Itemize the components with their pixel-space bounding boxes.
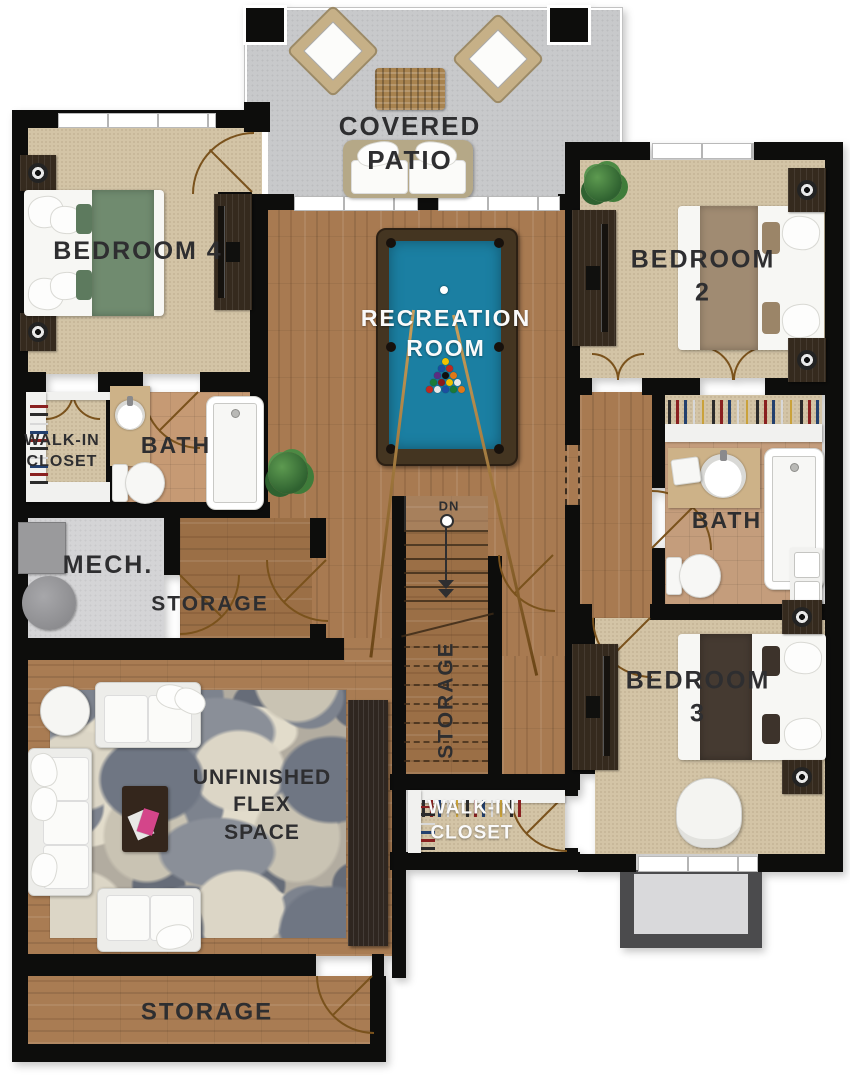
- wall: [565, 142, 650, 160]
- toilet: [666, 554, 720, 596]
- label-bath-left: BATH: [141, 431, 211, 461]
- patio-door-sill: [262, 128, 268, 194]
- tissue-box: [670, 456, 701, 486]
- stair-arrowhead: [438, 589, 454, 606]
- patio-post: [246, 8, 284, 42]
- stair-direction-line: [445, 526, 447, 588]
- wall: [390, 852, 580, 870]
- tv-screen: [602, 224, 608, 332]
- wall: [12, 1044, 384, 1062]
- nightstand: [782, 760, 822, 794]
- tv-screen: [604, 656, 610, 756]
- wall: [578, 854, 636, 872]
- wall: [565, 378, 592, 395]
- closet-shelf: [26, 482, 110, 502]
- wall: [758, 854, 843, 872]
- window-well-interior: [634, 874, 748, 934]
- stair-break-line: [401, 613, 494, 638]
- tub-drain: [790, 463, 799, 472]
- tv-stand: [226, 242, 240, 262]
- window: [58, 113, 216, 128]
- wall: [390, 774, 580, 790]
- bath-faucet: [127, 396, 133, 406]
- window-patio-slider: [438, 196, 560, 211]
- bed-pillow: [780, 302, 822, 341]
- stair-direction-marker: [440, 514, 454, 528]
- pool-pocket: [494, 238, 504, 248]
- linen-shelf-square: [794, 552, 820, 578]
- label-storage-left: STORAGE: [151, 590, 268, 617]
- window-egress: [638, 856, 758, 872]
- closet-shelf: [665, 424, 822, 442]
- wall: [12, 372, 46, 392]
- label-stairs-dn: DN: [439, 499, 460, 516]
- nightstand: [20, 155, 56, 191]
- bathtub: [206, 396, 264, 510]
- label-mech: MECH.: [63, 549, 154, 582]
- coffee-table: [122, 786, 168, 852]
- accent-chair: [676, 778, 742, 848]
- console-bar: [348, 700, 388, 946]
- wall: [12, 638, 344, 660]
- wall: [250, 194, 294, 210]
- wall: [565, 774, 578, 796]
- label-covered-patio: COVERED PATIO: [339, 110, 482, 178]
- label-bedroom3: BEDROOM 3: [622, 665, 774, 730]
- wall: [642, 378, 700, 395]
- pool-pocket: [494, 444, 504, 454]
- wall: [244, 102, 270, 132]
- label-storage-bottom: STORAGE: [141, 996, 273, 1027]
- wall: [12, 954, 316, 976]
- wall: [825, 142, 843, 872]
- floor-flex-corridor: [344, 638, 394, 662]
- tv-console: [572, 210, 616, 346]
- tv-stand: [586, 266, 600, 290]
- mech-tank: [22, 576, 76, 630]
- wall: [565, 505, 580, 605]
- plant: [584, 164, 622, 202]
- label-bedroom2: BEDROOM 2: [630, 244, 777, 309]
- wall: [310, 518, 326, 558]
- nightstand: [788, 168, 826, 212]
- bed-accent-pillow: [76, 204, 92, 234]
- loveseat: [95, 682, 201, 748]
- tub-drain: [231, 409, 240, 418]
- label-recreation-room: RECREATION ROOM: [361, 304, 531, 364]
- wall: [372, 954, 384, 976]
- toilet-bowl: [679, 554, 721, 598]
- toilet: [112, 462, 164, 502]
- tv-console: [572, 644, 618, 770]
- label-flex-space: UNFINISHED FLEX SPACE: [193, 764, 331, 846]
- floor-plan: COVERED PATIO BEDROOM 4 BEDROOM 2 RECREA…: [0, 0, 850, 1091]
- label-walk-in-closet-left: WALK-IN CLOSET: [24, 431, 99, 473]
- wall: [164, 518, 180, 575]
- closet-shelf: [408, 790, 421, 853]
- wall: [200, 372, 268, 392]
- floor-hall-stairs: [502, 656, 565, 776]
- round-side-table: [40, 686, 90, 736]
- bed-pillow: [780, 214, 822, 253]
- bath-faucet: [720, 450, 727, 461]
- bed-pillow: [782, 716, 824, 753]
- loveseat: [97, 888, 201, 952]
- water-heater: [18, 522, 66, 574]
- bed-pillow: [782, 640, 824, 677]
- nightstand: [20, 313, 56, 351]
- tv-stand: [586, 696, 600, 718]
- label-stair-storage: STORAGE: [432, 641, 459, 758]
- loveseat-cushion: [104, 695, 148, 743]
- window-patio-slider: [294, 196, 418, 211]
- bed-accent-pillow: [76, 270, 92, 300]
- sofa: [28, 748, 92, 896]
- loveseat-cushion: [106, 895, 150, 941]
- wall: [652, 395, 665, 488]
- label-walk-in-closet-bottom: WALK-IN CLOSET: [428, 796, 516, 845]
- nightstand: [782, 600, 822, 634]
- pool-pocket: [386, 238, 396, 248]
- patio-coffee-table: [375, 68, 445, 110]
- cue-ball: [440, 286, 448, 294]
- wall: [558, 194, 580, 210]
- label-bedroom4: BEDROOM 4: [53, 235, 222, 268]
- closet-clothes-rack: [668, 400, 820, 424]
- toilet-bowl: [125, 462, 165, 504]
- window: [652, 143, 754, 159]
- nightstand: [788, 338, 826, 382]
- plant: [268, 452, 308, 494]
- floor-cased-opening: [565, 445, 580, 505]
- label-bath-right: BATH: [692, 506, 762, 536]
- floor-hall-right: [580, 392, 652, 618]
- wall: [488, 556, 502, 776]
- patio-post: [550, 8, 588, 42]
- bath-vanity: [668, 448, 760, 508]
